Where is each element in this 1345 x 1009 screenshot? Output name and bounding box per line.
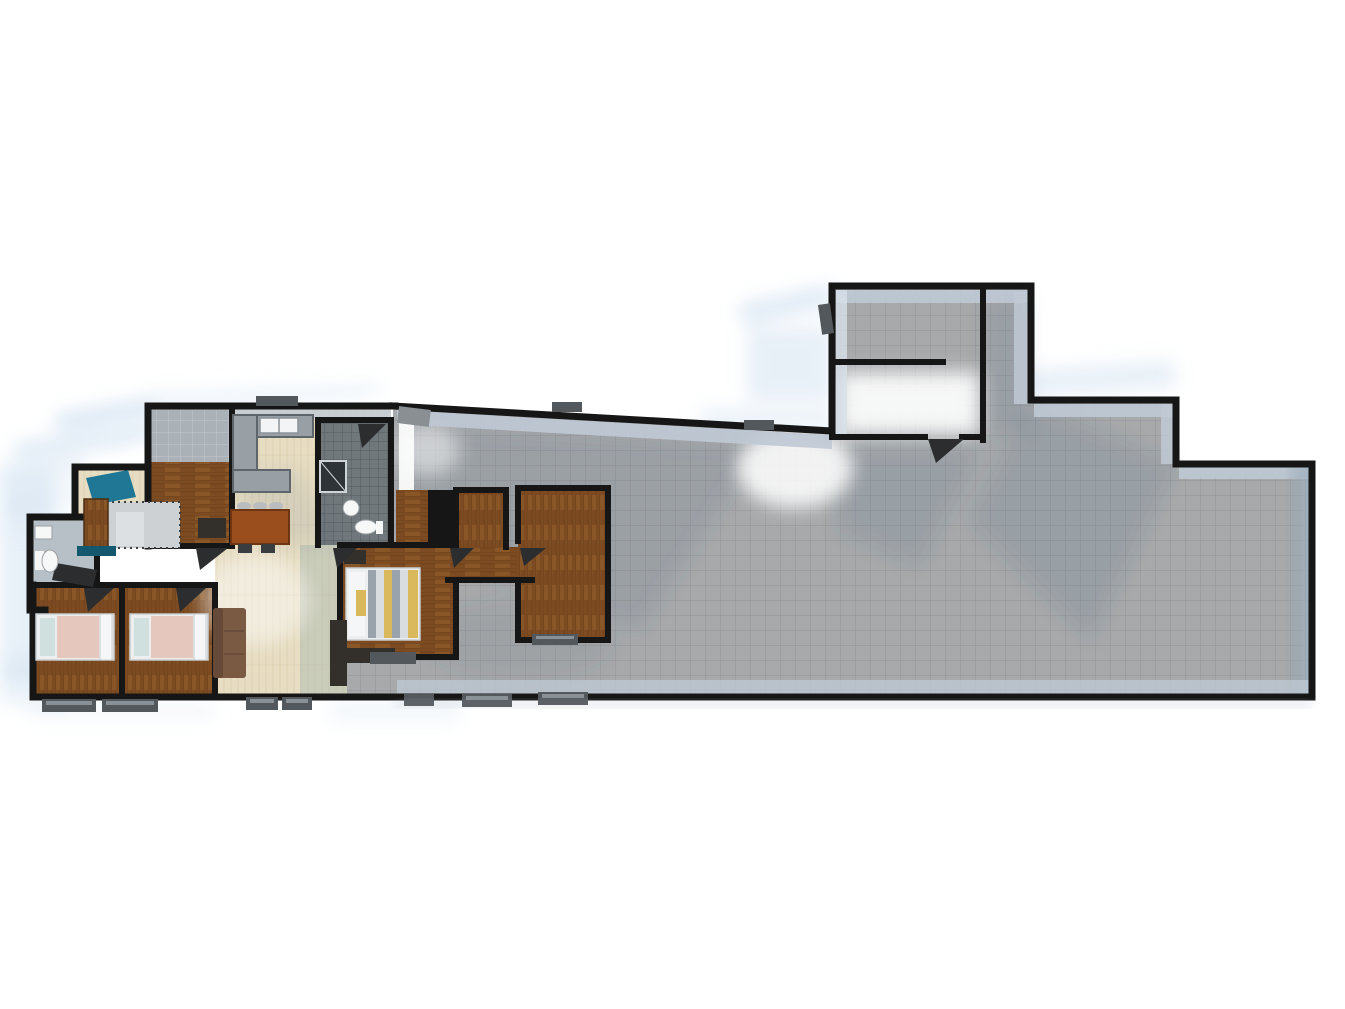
dining-table xyxy=(231,510,289,544)
bed-pillow xyxy=(134,618,149,656)
bar-stool xyxy=(253,502,267,510)
suite-corridor-floor xyxy=(396,490,430,580)
dresser xyxy=(198,518,226,538)
wall-face-east xyxy=(1284,467,1310,695)
bedroom-tl-north-wall-face xyxy=(148,406,232,462)
toilet xyxy=(355,520,377,534)
blanket-stripe xyxy=(384,570,392,638)
bar-stool xyxy=(269,502,283,510)
window-sill xyxy=(102,699,158,712)
entry-cabinet xyxy=(84,499,108,547)
window-sill xyxy=(552,402,582,412)
sofa-back xyxy=(213,608,223,678)
wall-face-annex-north xyxy=(836,290,1028,303)
wall-block xyxy=(428,490,456,547)
living-area xyxy=(213,608,246,678)
wardrobe xyxy=(330,620,347,686)
striped-blanket xyxy=(368,570,418,638)
window-sill xyxy=(246,697,278,710)
sill-highlight xyxy=(466,696,508,700)
teal-bench xyxy=(77,546,116,556)
bed-blanket xyxy=(151,616,193,658)
floor-plan-svg xyxy=(0,0,1345,1009)
window-sill xyxy=(42,699,96,712)
blanket-stripe xyxy=(368,570,376,638)
blanket-stripe xyxy=(408,570,418,638)
bed-footboard xyxy=(100,614,112,660)
window-sill xyxy=(282,697,312,710)
bed-pillow xyxy=(40,618,55,656)
window-sill xyxy=(744,420,774,430)
window-sill xyxy=(256,396,298,406)
blanket-stripe xyxy=(376,570,384,638)
floor-plan-render xyxy=(0,0,1345,1009)
entry-rug-pad xyxy=(116,512,144,546)
sill-highlight xyxy=(250,699,274,703)
blanket-stripe xyxy=(400,570,408,638)
toilet xyxy=(42,550,58,572)
kitchen-counter-island xyxy=(233,470,290,492)
wall-face-step xyxy=(1161,404,1174,464)
wash-basin xyxy=(343,500,359,516)
sill-highlight xyxy=(542,694,584,698)
sill-highlight xyxy=(106,701,154,705)
wood-room-a-floor xyxy=(456,490,506,547)
window-sill xyxy=(532,634,578,645)
toilet-tank xyxy=(376,521,383,534)
bed-footboard xyxy=(194,614,206,660)
dining-chair xyxy=(238,544,252,553)
sill-highlight xyxy=(46,701,92,705)
bed-blanket xyxy=(57,616,99,658)
wall-face-south xyxy=(397,680,1310,695)
dining-chair xyxy=(261,544,275,553)
facade-ground-shadow xyxy=(396,701,1312,706)
shadow-streak xyxy=(748,328,832,400)
accent-pillow xyxy=(356,590,366,616)
sill-highlight xyxy=(286,699,308,703)
window-sill xyxy=(370,652,416,664)
sun-patch xyxy=(838,372,980,434)
wood-room-c-floor xyxy=(518,488,608,640)
wall-face-annex-east xyxy=(1014,292,1028,404)
blanket-stripe xyxy=(392,570,400,638)
wall-face-northeast xyxy=(1034,404,1176,417)
wash-basin xyxy=(35,526,52,539)
sill-highlight xyxy=(536,636,574,639)
bar-stool xyxy=(237,502,251,510)
